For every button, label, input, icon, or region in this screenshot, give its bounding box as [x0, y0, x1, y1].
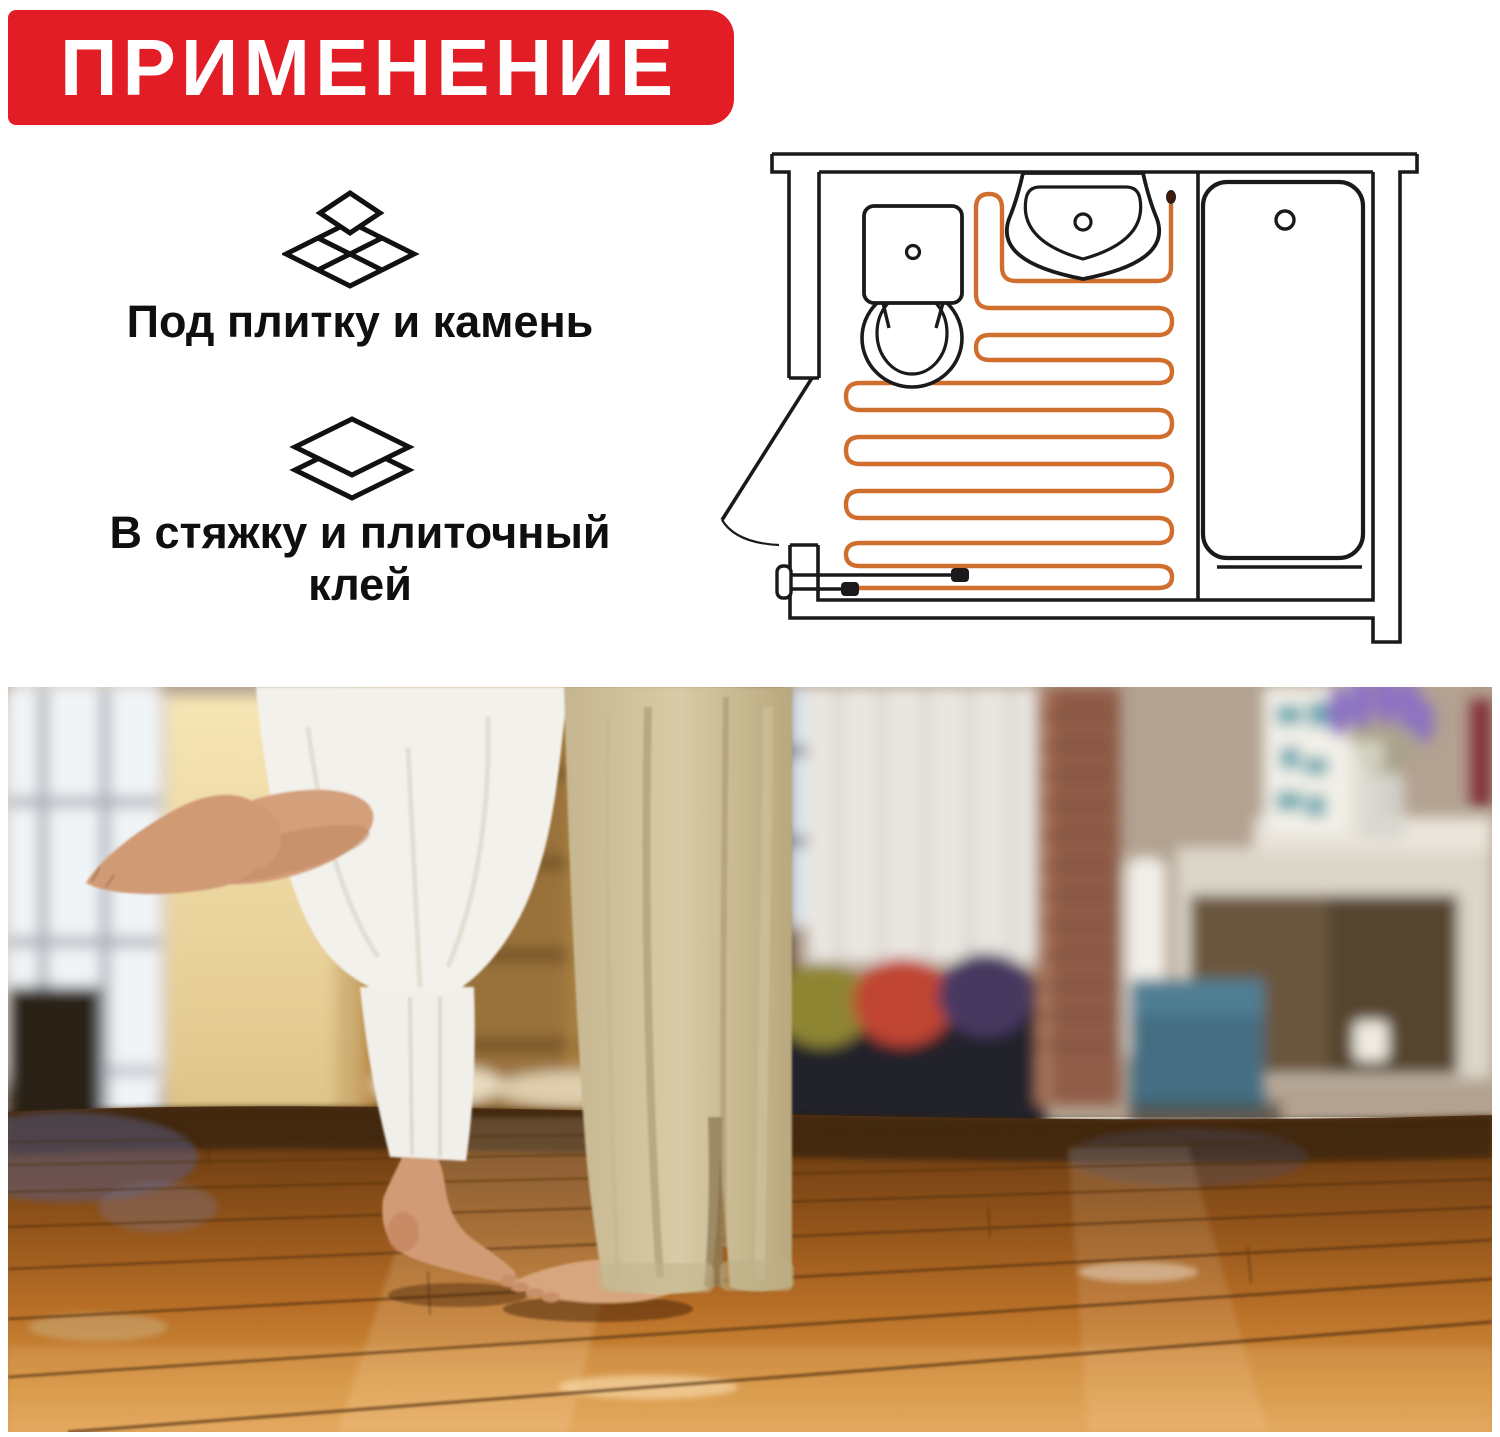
- door: [722, 378, 812, 545]
- feature-label-tiles: Под плитку и камень: [60, 296, 660, 348]
- tiles-icon: [282, 186, 420, 292]
- bathroom-floorplan-diagram: [700, 140, 1460, 670]
- power-leads: [777, 566, 969, 598]
- sink-icon: [1007, 173, 1159, 279]
- brick-column: [1036, 687, 1120, 1105]
- banner-title: ПРИМЕНЕНИЕ: [8, 22, 678, 114]
- floor-sensor-icon: [1167, 191, 1176, 204]
- lifestyle-photo: [8, 687, 1492, 1432]
- banner: ПРИМЕНЕНИЕ: [8, 10, 734, 125]
- bathtub-icon: [1203, 182, 1363, 567]
- feature-label-screed: В стяжку и плиточный клей: [90, 507, 630, 611]
- product-infographic: ПРИМЕНЕНИЕ Под плитку и камень В стяжку …: [0, 0, 1500, 1437]
- teal-cabinet: [1130, 979, 1280, 1125]
- toilet-icon: [862, 206, 962, 387]
- window-curtain: [790, 687, 1036, 962]
- layers-icon: [288, 412, 416, 504]
